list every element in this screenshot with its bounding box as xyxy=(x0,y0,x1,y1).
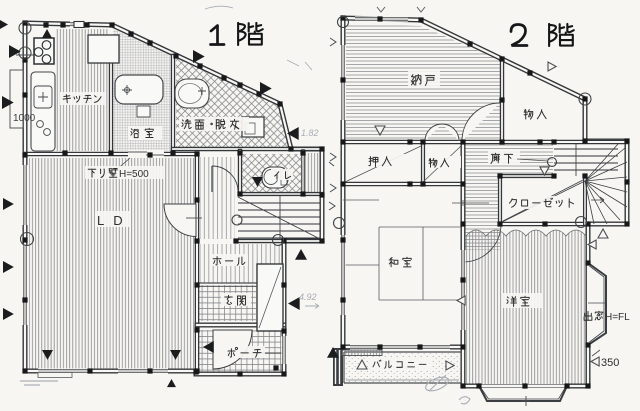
svg-text:H=500: H=500 xyxy=(119,169,149,180)
svg-text:1.82: 1.82 xyxy=(301,128,319,138)
svg-text:4.92: 4.92 xyxy=(299,292,317,302)
svg-text:1000: 1000 xyxy=(13,113,36,124)
svg-text:H=FL: H=FL xyxy=(605,312,630,323)
svg-text:LD: LD xyxy=(97,213,132,228)
svg-text:350: 350 xyxy=(601,357,619,369)
